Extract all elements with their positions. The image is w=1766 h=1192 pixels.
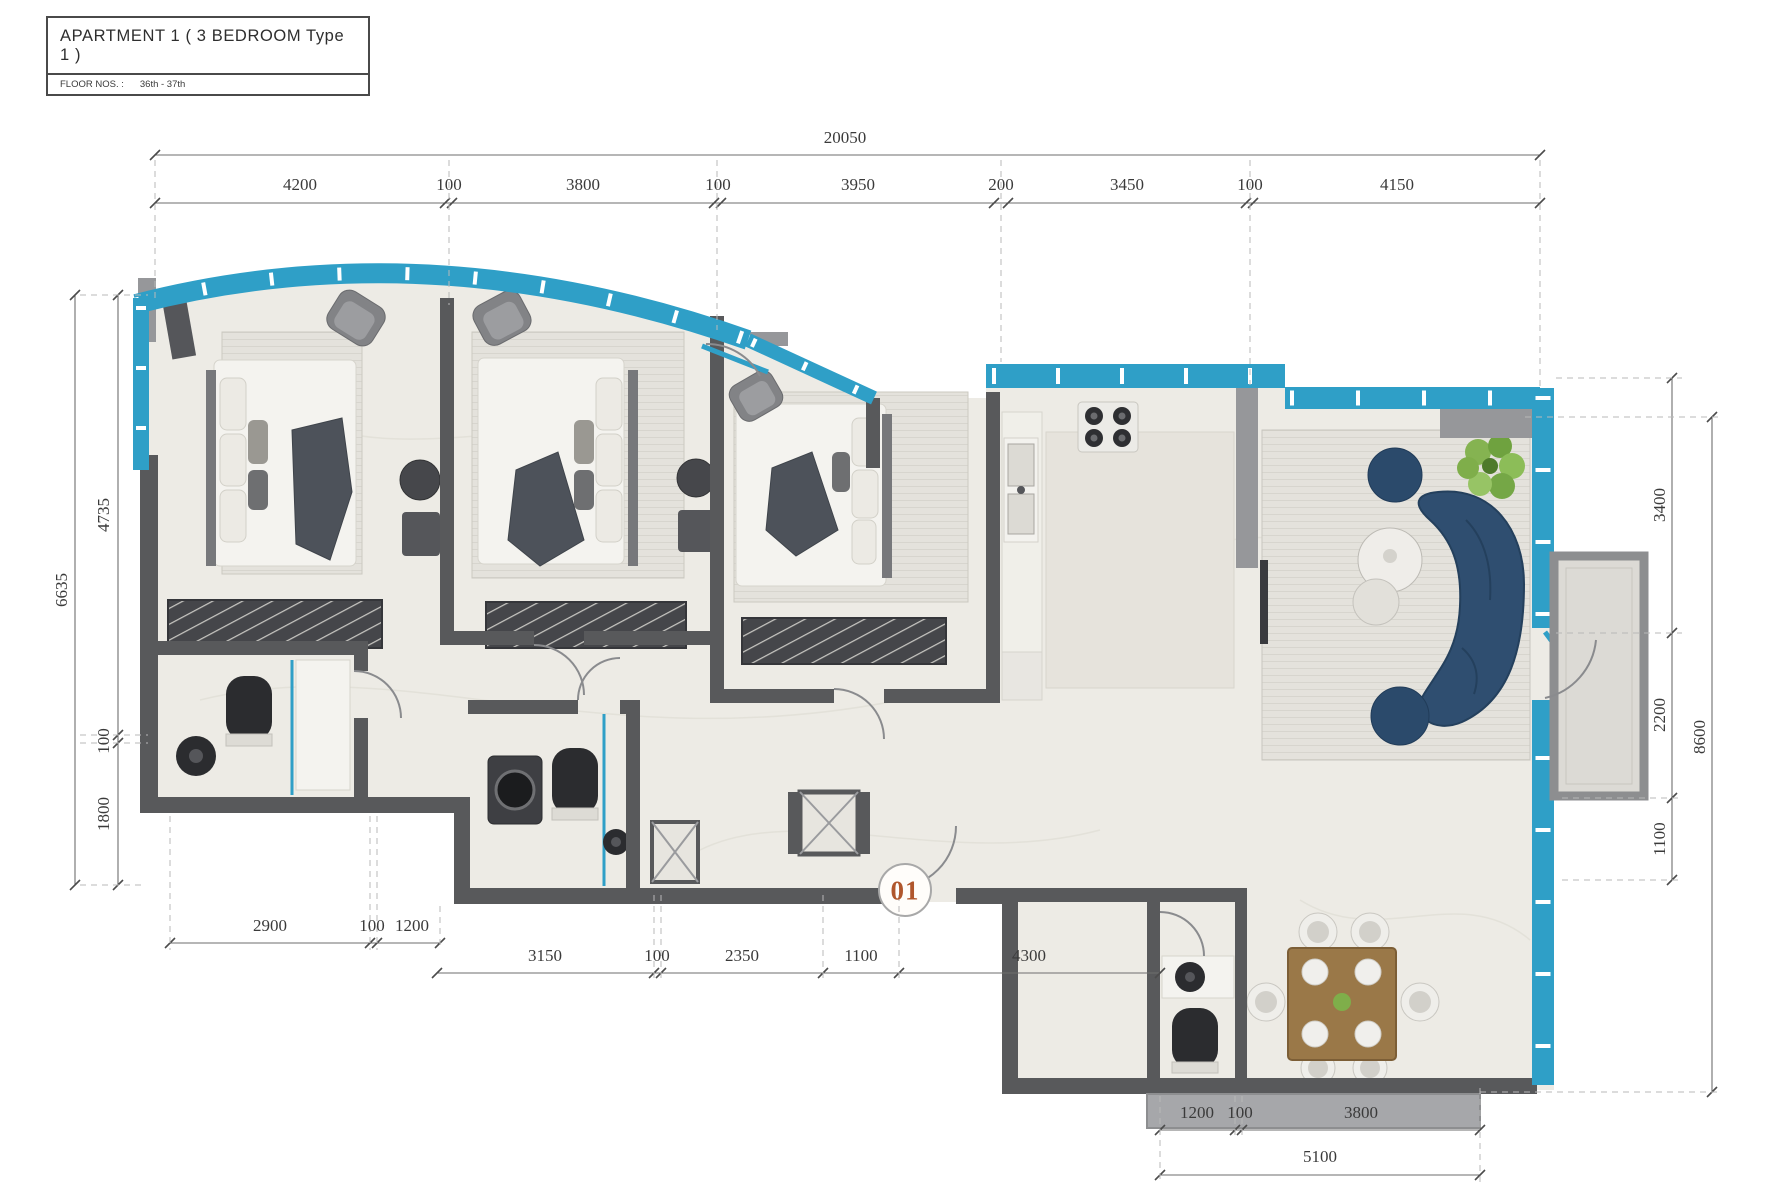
unit-number-marker: 01 bbox=[891, 876, 920, 907]
dim-top-seg: 3450 bbox=[1110, 175, 1144, 195]
pouf-bottom bbox=[1371, 687, 1429, 745]
dim-left-total: 6635 bbox=[52, 573, 72, 607]
dim-top-total: 20050 bbox=[824, 128, 867, 148]
kitchen bbox=[1002, 402, 1234, 700]
floor-value: 36th - 37th bbox=[140, 79, 185, 90]
balcony-right bbox=[1554, 556, 1644, 796]
floor-numbers-row: FLOOR NOS. : 36th - 37th bbox=[48, 75, 368, 94]
floorplan-page: APARTMENT 1 ( 3 BEDROOM Type 1 ) FLOOR N… bbox=[0, 0, 1766, 1192]
tv bbox=[1260, 560, 1268, 644]
dim-top-seg: 3950 bbox=[841, 175, 875, 195]
dim-bottomleft-seg: 1200 bbox=[395, 916, 429, 936]
dim-bottommid-seg: 2350 bbox=[725, 946, 759, 966]
dim-left-seg: 1800 bbox=[94, 797, 114, 831]
dim-left-seg: 4735 bbox=[94, 498, 114, 532]
dim-right-seg: 3400 bbox=[1650, 488, 1670, 522]
kitchen-sink bbox=[1004, 438, 1038, 542]
dim-left-seg: 100 bbox=[94, 728, 114, 754]
dim-bottommid-seg: 4300 bbox=[1012, 946, 1046, 966]
dim-bottommid-seg: 3150 bbox=[528, 946, 562, 966]
bedroom3-wardrobe bbox=[742, 618, 946, 664]
bedroom2-bed bbox=[478, 358, 638, 566]
floorplan-svg bbox=[0, 0, 1766, 1192]
dim-top-seg: 4150 bbox=[1380, 175, 1414, 195]
dim-bottomright-seg: 3800 bbox=[1344, 1103, 1378, 1123]
dim-top-seg: 4200 bbox=[283, 175, 317, 195]
dim-bottomright-seg: 100 bbox=[1227, 1103, 1253, 1123]
bedroom1-wardrobe bbox=[168, 600, 382, 648]
dim-bottommid-seg: 100 bbox=[644, 946, 670, 966]
apartment-title: APARTMENT 1 ( 3 BEDROOM Type 1 ) bbox=[48, 18, 368, 75]
dim-top-seg: 100 bbox=[705, 175, 731, 195]
dim-top-seg: 3800 bbox=[566, 175, 600, 195]
dim-bottomleft-seg: 2900 bbox=[253, 916, 287, 936]
dim-bottomright-seg: 1200 bbox=[1180, 1103, 1214, 1123]
kitchen-hob bbox=[1078, 402, 1138, 452]
dim-top-seg: 100 bbox=[436, 175, 462, 195]
dim-bottomright-total: 5100 bbox=[1303, 1147, 1337, 1167]
title-block: APARTMENT 1 ( 3 BEDROOM Type 1 ) FLOOR N… bbox=[46, 16, 370, 96]
dim-top-seg: 100 bbox=[1237, 175, 1263, 195]
dim-bottommid-seg: 1100 bbox=[844, 946, 877, 966]
dim-right-seg: 2200 bbox=[1650, 698, 1670, 732]
dim-top-seg: 200 bbox=[988, 175, 1014, 195]
floor-label: FLOOR NOS. : bbox=[60, 79, 124, 90]
dim-right-total: 8600 bbox=[1690, 720, 1710, 754]
bedroom1-bed bbox=[206, 360, 356, 566]
pouf-top bbox=[1368, 448, 1422, 502]
dim-bottomleft-seg: 100 bbox=[359, 916, 385, 936]
coffee-table-small bbox=[1353, 579, 1399, 625]
dim-right-seg: 1100 bbox=[1650, 822, 1670, 855]
